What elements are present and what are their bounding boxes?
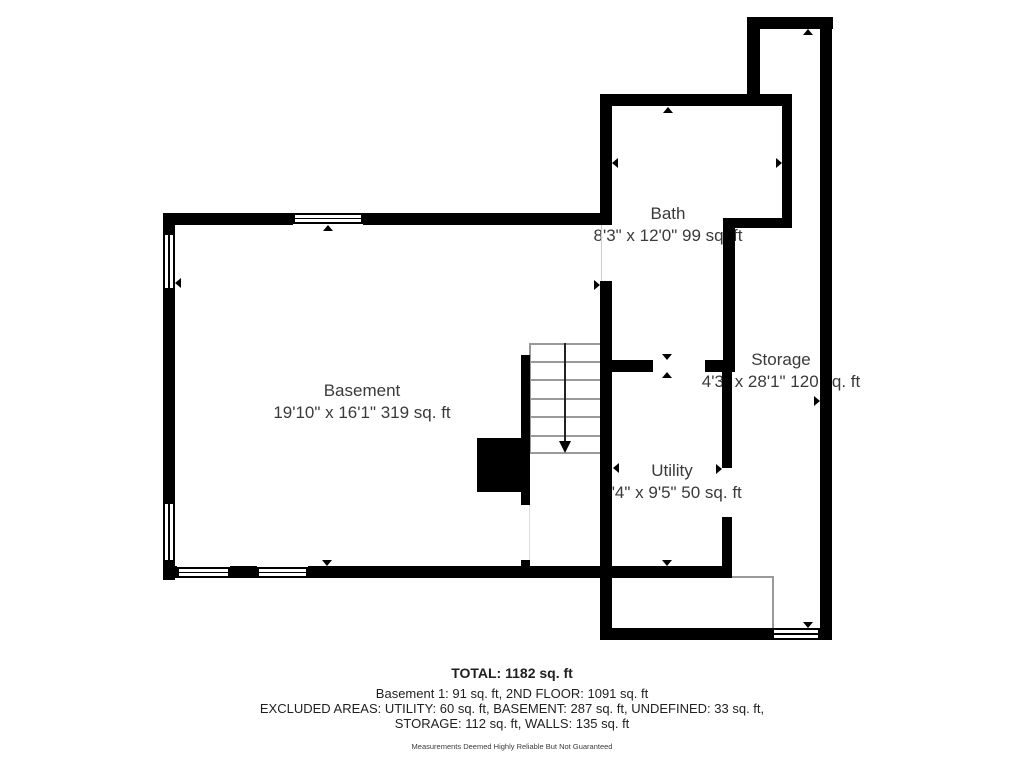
marker-down-icon <box>322 560 332 566</box>
wall-bottom-a <box>163 566 177 578</box>
summary-total: TOTAL: 1182 sq. ft <box>0 666 1024 681</box>
wall-basement-left-b <box>163 290 175 502</box>
marker-down-icon <box>662 354 672 360</box>
wall-stair-notch <box>521 560 530 578</box>
marker-up-icon <box>662 372 672 378</box>
room-name: Basement <box>212 380 512 402</box>
wall-bath-right <box>782 94 792 228</box>
wall-bath-left <box>600 94 612 225</box>
window-left-upper <box>163 233 175 290</box>
stair-direction-line <box>564 343 566 441</box>
wall-bath-top <box>600 94 792 106</box>
marker-left-icon <box>613 463 619 473</box>
window-left-lower <box>163 502 175 562</box>
wall-right-outer <box>820 17 832 640</box>
stair-down-arrow-icon <box>559 441 571 453</box>
marker-right-icon <box>814 396 820 406</box>
marker-down-icon <box>803 622 813 628</box>
wall-utility-top-right <box>705 360 723 372</box>
boundary-storage-bottom-v <box>772 576 774 629</box>
marker-left-icon <box>612 158 618 168</box>
floor-plan: Basement 19'10" x 16'1" 319 sq. ft Bath … <box>0 0 1024 768</box>
disclaimer-text: Measurements Deemed Highly Reliable But … <box>0 742 1024 751</box>
summary-excluded-2: STORAGE: 112 sq. ft, WALLS: 135 sq. ft <box>0 716 1024 731</box>
room-dims: 8'3" x 12'0" 99 sq. ft <box>568 225 768 247</box>
marker-right-icon <box>594 280 600 290</box>
wall-utility-right-upper <box>722 360 732 468</box>
marker-up-icon <box>803 29 813 35</box>
wall-utility-top-left <box>612 360 653 372</box>
marker-up-icon <box>323 225 333 231</box>
wall-basement-top-a <box>163 213 293 225</box>
marker-left-icon <box>175 278 181 288</box>
wall-bottom-b <box>230 566 257 578</box>
marker-right-icon <box>776 158 782 168</box>
marker-down-icon <box>662 560 672 566</box>
window-top <box>293 213 363 224</box>
wall-bottom-outer <box>610 628 772 640</box>
wall-central-lower <box>600 281 612 640</box>
wall-basement-left-a <box>163 213 175 233</box>
room-dims: 4'3" x 28'1" 120 sq. ft <box>681 371 881 393</box>
marker-up-icon <box>663 107 673 113</box>
chimney-block <box>477 438 527 492</box>
marker-right-icon <box>716 464 722 474</box>
door-opening-line <box>601 225 602 281</box>
wall-basement-top-b <box>363 213 600 225</box>
summary-floors: Basement 1: 91 sq. ft, 2ND FLOOR: 1091 s… <box>0 686 1024 701</box>
wall-storage-left <box>723 218 735 372</box>
window-bottom-right <box>772 628 820 640</box>
window-bottom-1 <box>177 567 230 578</box>
wall-bottom-c <box>308 566 730 578</box>
room-dims: 19'10" x 16'1" 319 sq. ft <box>212 402 512 424</box>
room-label-basement: Basement 19'10" x 16'1" 319 sq. ft <box>212 380 512 424</box>
wall-shaft-left <box>747 17 760 106</box>
summary-excluded-1: EXCLUDED AREAS: UTILITY: 60 sq. ft, BASE… <box>0 701 1024 716</box>
boundary-storage-bottom-h <box>730 576 773 578</box>
window-bottom-2 <box>257 567 308 578</box>
